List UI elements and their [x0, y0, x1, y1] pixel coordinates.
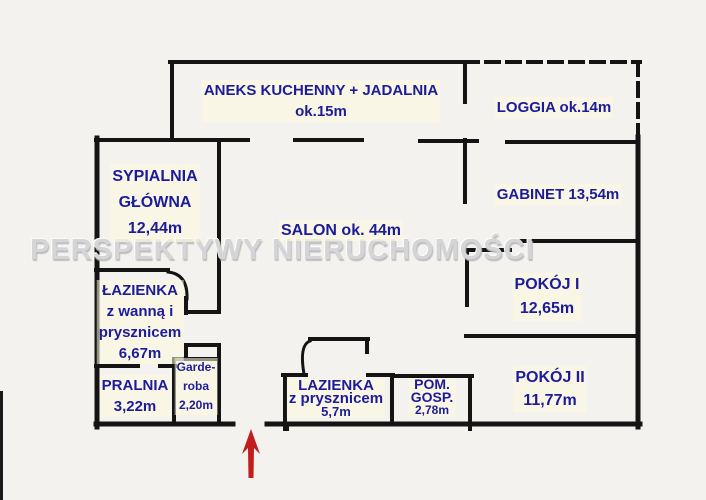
room-label-lazienka-z-prysznicem: LAZIENKA z prysznicem 5,7m [287, 379, 385, 418]
room-name: LOGGIA ok.14m [495, 97, 613, 118]
room-label-pralnia: PRALNIA 3,22m [100, 375, 171, 417]
room-label-salon: SALON ok. 44m [279, 220, 403, 241]
room-label-loggia: LOGGIA ok.14m [495, 97, 613, 118]
room-name: GŁÓWNA [110, 190, 199, 216]
room-area: 11,77m [513, 389, 586, 412]
room-name: roba [175, 377, 218, 396]
room-label-garderoba: Garde- roba 2,20m [175, 358, 218, 415]
room-label-pokoj-1: POKÓJ I 12,65m [513, 273, 582, 321]
room-name: PRALNIA [100, 375, 171, 396]
room-label-gabinet: GABINET 13,54m [495, 184, 622, 205]
room-name: ŁAZIENKA [97, 280, 184, 301]
room-name: GABINET 13,54m [495, 184, 622, 205]
room-area: 2,20m [175, 396, 218, 415]
room-label-aneks-kuchenny: ANEKS KUCHENNY + JADALNIA ok.15m [202, 80, 440, 122]
room-name: Garde- [175, 358, 218, 377]
room-name: POKÓJ I [513, 273, 582, 297]
room-label-pokoj-2: POKÓJ II 11,77m [513, 366, 586, 412]
room-label-pom-gosp: POM. GOSP. 2,78m [409, 378, 456, 417]
room-name: POKÓJ II [513, 366, 586, 389]
room-name: z wanną i [97, 301, 184, 322]
floorplan: PERSPEKTYWY NIERUCHOMOŚCI ANEKS KUCHENNY… [0, 0, 706, 500]
room-label-lazienka-z-wanna: ŁAZIENKA z wanną i prysznicem 6,67m [97, 280, 184, 364]
room-name: SALON ok. 44m [279, 220, 403, 241]
room-name: prysznicem [97, 322, 184, 343]
entrance-arrow [242, 429, 260, 478]
scan-edge-artifact [0, 391, 3, 500]
room-area: ok.15m [202, 101, 440, 122]
room-name: SYPIALNIA [110, 164, 199, 190]
room-name: ANEKS KUCHENNY + JADALNIA [202, 80, 440, 101]
room-area: 2,78m [409, 404, 456, 417]
room-area: 6,67m [97, 343, 184, 364]
room-area: 12,65m [513, 297, 582, 321]
room-area: 3,22m [100, 396, 171, 417]
room-label-sypialnia: SYPIALNIA GŁÓWNA 12,44m [110, 164, 199, 242]
room-area: 12,44m [110, 216, 199, 242]
